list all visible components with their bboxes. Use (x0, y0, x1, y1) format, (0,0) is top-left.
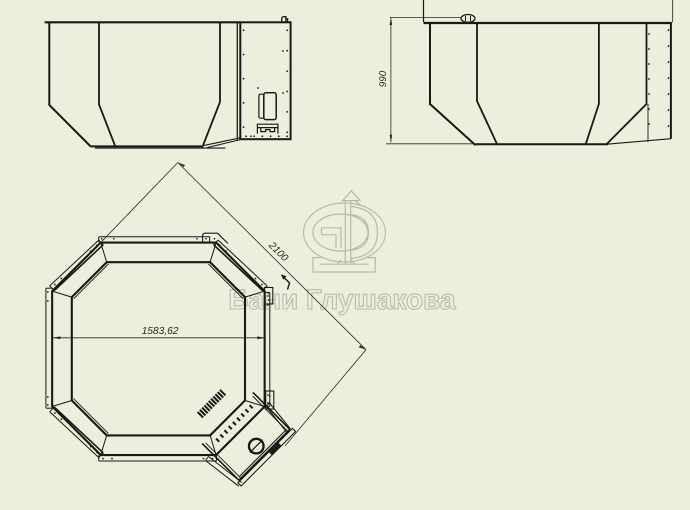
svg-text:990: 990 (378, 70, 389, 87)
svg-text:1583,62: 1583,62 (142, 326, 179, 337)
